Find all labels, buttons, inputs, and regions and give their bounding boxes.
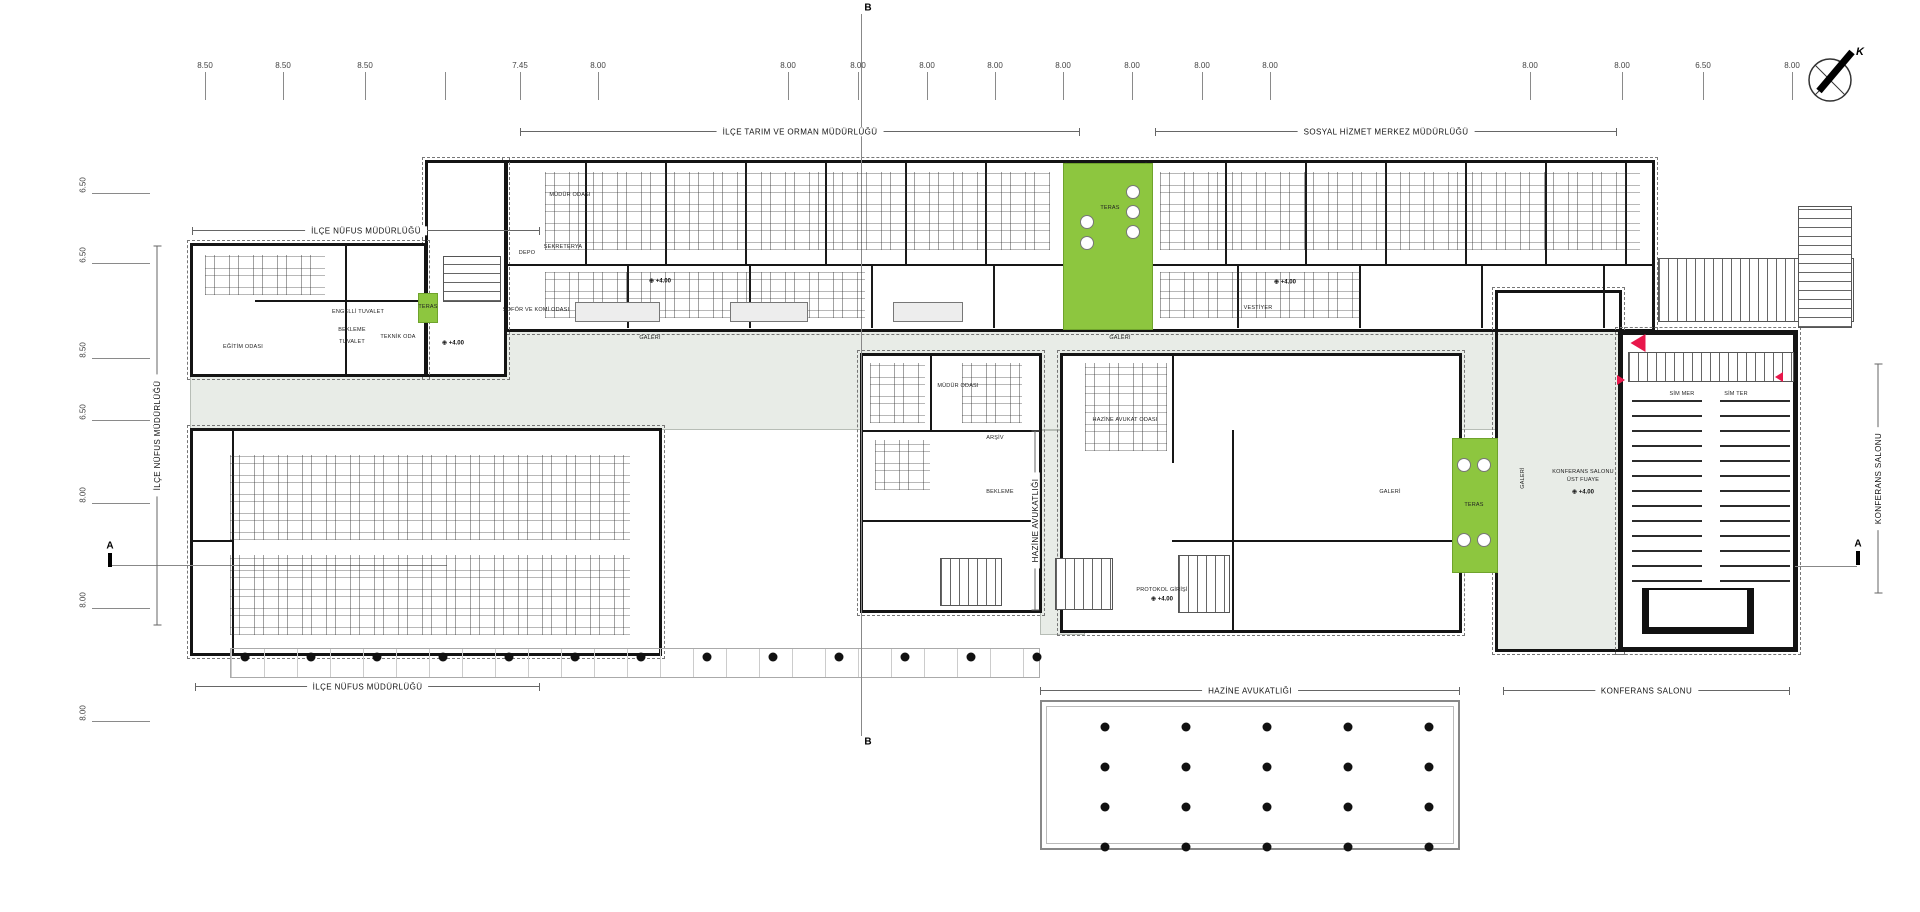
section-marker-b-top: B [864,3,871,14]
tree-circle-icon [1080,236,1094,250]
column-dot [1182,723,1191,732]
department-label-text: İLÇE TARIM VE ORMAN MÜDÜRLÜĞÜ [717,127,884,136]
furniture-stage [1642,588,1754,634]
dimension-tick [365,72,366,100]
column-dot [439,653,448,662]
department-label: İLÇE NÜFUS MÜDÜRLÜĞÜ [195,686,540,687]
north-arrow-compass-icon: K [1800,40,1872,112]
wall-block [940,558,1002,606]
furniture-table [575,302,660,322]
room-label: ŞOFÖR VE KOMİ ODASI [503,307,569,313]
dimension-label: 8.00 [850,61,866,70]
column-dot [1101,843,1110,852]
column-dot [967,653,976,662]
room-label: BEKLEME [986,489,1013,495]
furniture-desks [962,363,1022,423]
terrace [1063,163,1153,330]
room-label: TUVALET [339,339,365,345]
dimension-tick [788,72,789,100]
column-dot [703,653,712,662]
department-label-text: HAZİNE AVUKATLIĞI [1202,686,1298,695]
furniture-table [730,302,808,322]
dimension-label: 8.00 [987,61,1003,70]
floor-plan-canvas: TERASTERASTERAS8.508.508.507.458.008.008… [0,0,1920,912]
dimension-tick [92,193,150,194]
terrace-label: TERAS [418,304,437,310]
dimension-label: 8.00 [780,61,796,70]
dimension-label: 6.50 [79,247,88,263]
dimension-tick [1202,72,1203,100]
wall-block [108,553,112,567]
dimension-tick [283,72,284,100]
furniture-desks [230,455,630,540]
room-label: GALERİ [1379,489,1400,495]
department-label-text: HAZİNE AVUKATLIĞI [1031,473,1040,569]
column-dot [1263,843,1272,852]
room-label: ARŞİV [986,435,1004,441]
dimension-tick [995,72,996,100]
tree-circle-icon [1477,458,1491,472]
level-marker: ⊕ +4.00 [1572,489,1594,496]
dimension-tick [1792,72,1793,100]
furniture-desks [1160,272,1360,318]
tree-circle-icon [1457,458,1471,472]
furniture-desks [1085,363,1167,451]
dimension-label: 8.00 [79,705,88,721]
column-dot [1263,723,1272,732]
column-dot [637,653,646,662]
wall-block [862,430,1042,432]
room-label: VESTİYER [1244,305,1273,311]
dimension-label: 8.00 [1194,61,1210,70]
room-label: TEKNİK ODA [380,334,415,340]
dimension-tick [92,358,150,359]
terrace-label: TERAS [1464,502,1483,508]
column-dot [1425,843,1434,852]
furniture-desks [230,555,630,635]
room-label: ÜST FUAYE [1567,477,1599,483]
room-label: SİM TER [1724,391,1748,397]
column-dot [835,653,844,662]
column-dot [1344,763,1353,772]
column-dot [1101,723,1110,732]
dimension-label: 7.45 [512,61,528,70]
room-label: HAZİNE AVUKAT ODASI [1093,417,1158,423]
wall-block [1172,540,1460,542]
wall-block [1055,558,1113,610]
column-dot [373,653,382,662]
column-dot [1101,803,1110,812]
furniture-table [893,302,963,322]
column-dot [1344,843,1353,852]
room-label: EĞİTİM ODASI [223,344,263,350]
wall-block [861,14,862,736]
column-dot [769,653,778,662]
department-label: HAZİNE AVUKATLIĞI [1035,431,1036,611]
column-dot [1101,763,1110,772]
section-marker-b-bottom: B [864,737,871,748]
wall-block [862,520,1042,522]
room-label: SİM MER [1670,391,1695,397]
wall-block [443,256,501,302]
wall-block [1172,355,1174,463]
room-label: PROTOKOL GİRİŞİ [1136,587,1187,593]
section-marker-a-left: A [106,541,113,552]
department-label-text: İLÇE NÜFUS MÜDÜRLÜĞÜ [153,375,162,497]
room-label: DEPO [519,250,535,256]
dimension-label: 8.00 [79,592,88,608]
tree-circle-icon [1126,185,1140,199]
level-marker: ⊕ +4.00 [649,278,671,285]
wall-block [1178,555,1230,613]
furniture-desks [205,255,325,295]
department-label-text: KONFERANS SALONU [1595,686,1698,695]
dimension-tick [1703,72,1704,100]
furniture-desks [870,363,925,423]
tree-circle-icon [1457,533,1471,547]
column-dot [1182,803,1191,812]
department-label-text: KONFERANS SALONU [1874,427,1883,530]
dimension-label: 6.50 [1695,61,1711,70]
dimension-label: 6.50 [79,404,88,420]
dimension-label: 8.00 [1262,61,1278,70]
furniture-seats [1632,390,1790,582]
department-label-text: SOSYAL HİZMET MERKEZ MÜDÜRLÜĞÜ [1298,127,1475,136]
level-marker: ⊕ +4.00 [442,340,464,347]
column-dot [1182,763,1191,772]
column-dot [1263,763,1272,772]
tree-circle-icon [1126,225,1140,239]
dimension-label: 8.00 [79,487,88,503]
dimension-tick [445,72,446,100]
dimension-label: 8.00 [1614,61,1630,70]
column-dot [1344,723,1353,732]
dimension-tick [927,72,928,100]
dimension-tick [598,72,599,100]
wall-block [1628,352,1794,382]
red-arrow-icon [1617,375,1625,385]
wall-block [930,355,932,430]
wall-block [1856,551,1860,565]
red-arrow-icon [1775,372,1783,382]
terrace-label: TERAS [1100,205,1119,211]
dimension-label: 8.00 [919,61,935,70]
department-label: KONFERANS SALONU [1503,690,1790,691]
room-label: GALERİ [1109,335,1130,341]
dimension-tick [858,72,859,100]
department-label: İLÇE NÜFUS MÜDÜRLÜĞÜ [157,246,158,626]
dimension-label: 8.00 [590,61,606,70]
dimension-tick [1622,72,1623,100]
column-dot [901,653,910,662]
wall-block [190,540,232,542]
room-label: SEKRETERYA [544,244,582,250]
dimension-label: 8.00 [1522,61,1538,70]
dimension-tick [92,263,150,264]
department-label: İLÇE TARIM VE ORMAN MÜDÜRLÜĞÜ [520,131,1080,132]
wall-block [1798,206,1852,328]
tree-circle-icon [1080,215,1094,229]
room-label: GALERİ [639,335,660,341]
column-dot [1425,723,1434,732]
wall-block [230,648,1040,678]
column-dot [1033,653,1042,662]
column-dot [1425,763,1434,772]
level-marker: ⊕ +4.00 [1151,596,1173,603]
room-label: ENGELLİ TUVALET [332,309,384,315]
dimension-tick [1530,72,1531,100]
dimension-label: 8.50 [357,61,373,70]
room-label: BEKLEME [338,327,365,333]
dimension-label: 6.50 [79,177,88,193]
room-label: MÜDÜR ODASI [549,192,590,198]
tree-circle-icon [1126,205,1140,219]
level-marker: ⊕ +4.00 [1274,279,1296,286]
dimension-tick [1270,72,1271,100]
furniture-desks [545,172,1050,250]
column-dot [1344,803,1353,812]
dimension-label: 8.50 [197,61,213,70]
dimension-tick [205,72,206,100]
department-label-text: İLÇE NÜFUS MÜDÜRLÜĞÜ [305,226,427,235]
dimension-tick [92,503,150,504]
column-dot [1425,803,1434,812]
wall-block [255,300,425,302]
dimension-tick [520,72,521,100]
furniture-desks [1160,172,1640,250]
dimension-tick [1063,72,1064,100]
department-label-text: İLÇE NÜFUS MÜDÜRLÜĞÜ [307,682,429,691]
dimension-tick [92,721,150,722]
tree-circle-icon [1477,533,1491,547]
column-dot [307,653,316,662]
section-marker-a-right: A [1854,539,1861,550]
red-arrow-icon [1631,334,1646,352]
department-label: KONFERANS SALONU [1878,364,1879,594]
department-label: İLÇE NÜFUS MÜDÜRLÜĞÜ [192,230,540,231]
dimension-tick [1132,72,1133,100]
wall-block [1232,430,1234,633]
column-dot [1263,803,1272,812]
column-dot [571,653,580,662]
column-dot [241,653,250,662]
wall-block [1795,566,1857,567]
room-label: MÜDÜR ODASI [937,383,978,389]
dimension-tick [92,420,150,421]
dimension-label: 8.00 [1055,61,1071,70]
dimension-label: 8.00 [1124,61,1140,70]
dimension-label: 8.00 [1784,61,1800,70]
dimension-label: 8.50 [79,342,88,358]
department-label: SOSYAL HİZMET MERKEZ MÜDÜRLÜĞÜ [1155,131,1617,132]
column-dot [505,653,514,662]
column-dot [1182,843,1191,852]
dimension-tick [92,608,150,609]
north-label: K [1856,46,1864,58]
furniture-desks [875,440,930,490]
room-label: KONFERANS SALONU [1552,469,1614,475]
dimension-label: 8.50 [275,61,291,70]
department-label: HAZİNE AVUKATLIĞI [1040,690,1460,691]
room-label: GALERİ [1520,467,1526,488]
